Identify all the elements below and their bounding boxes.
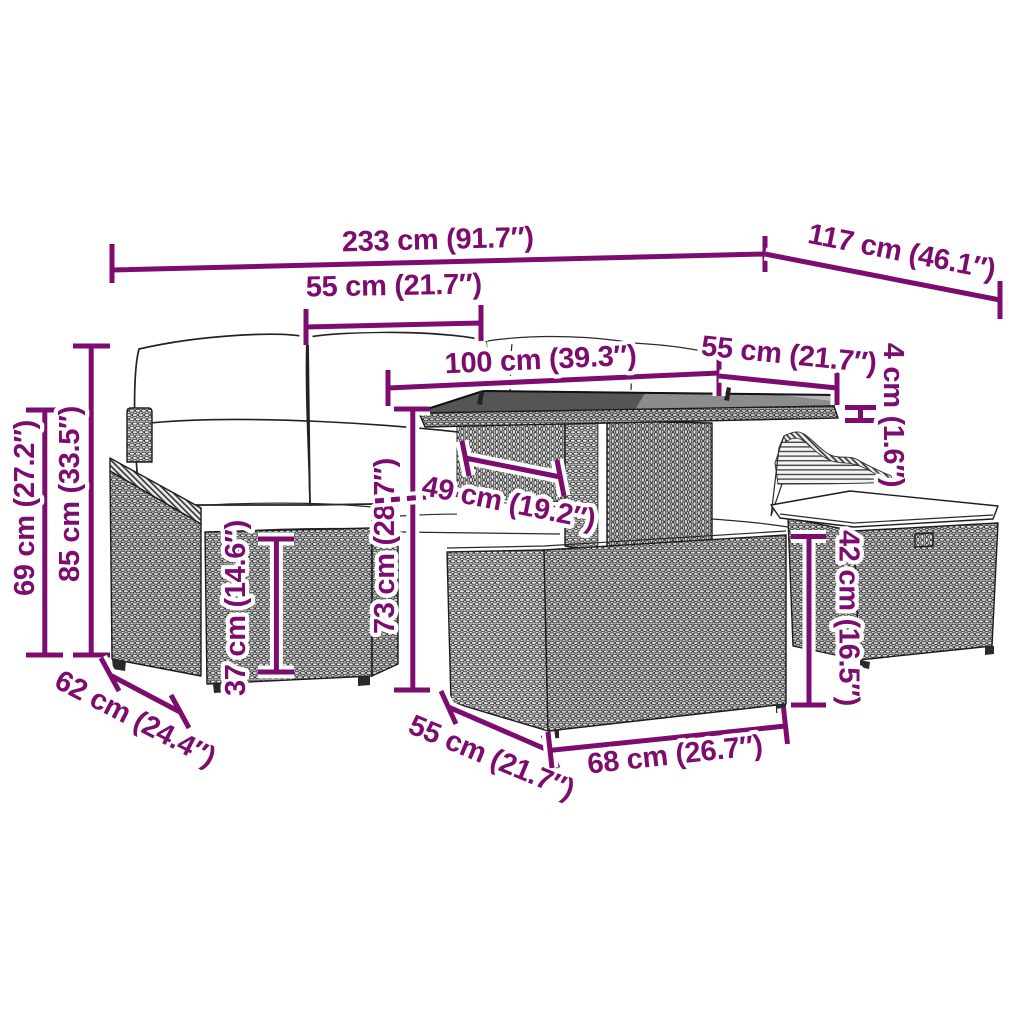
svg-text:55 cm (21.7″): 55 cm (21.7″) [306,268,483,303]
svg-text:73 cm (28.7″): 73 cm (28.7″) [369,458,401,634]
svg-text:69 cm (27.2″): 69 cm (27.2″) [9,420,41,596]
svg-text:4 cm (1.6″): 4 cm (1.6″) [877,343,909,487]
svg-text:42 cm (16.5″): 42 cm (16.5″) [833,530,865,706]
svg-text:233 cm (91.7″): 233 cm (91.7″) [341,222,534,259]
svg-text:85 cm (33.5″): 85 cm (33.5″) [54,406,86,582]
svg-text:37 cm (14.6″): 37 cm (14.6″) [220,520,252,696]
